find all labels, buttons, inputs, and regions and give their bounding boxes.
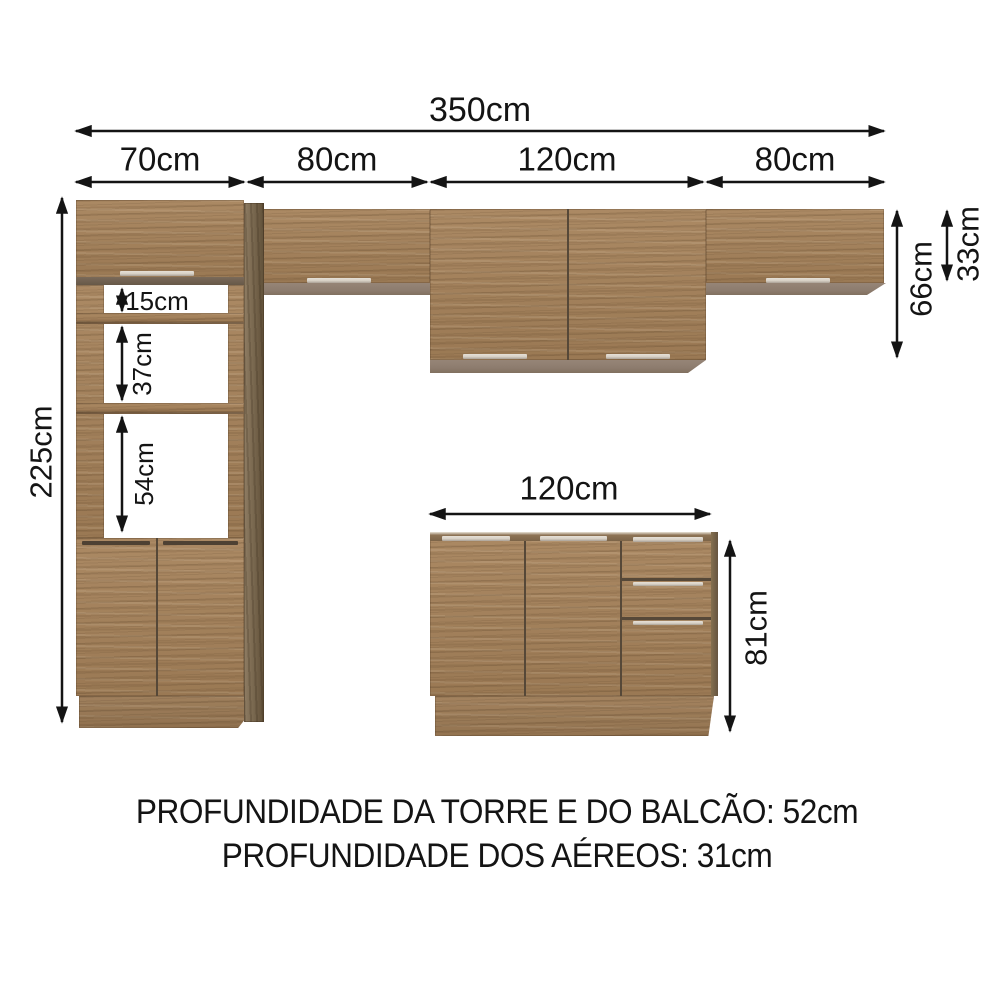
aereo-mid-right-door-handle	[606, 354, 670, 359]
tower-upper-door-handle	[120, 271, 194, 276]
balcao-drawer-divider-2	[622, 617, 718, 620]
aereo-mid-cabinet	[430, 209, 706, 360]
balcao-drawer-3-handle	[633, 621, 703, 625]
aereo-mid-left-door-handle	[463, 354, 527, 359]
aereo-right-underside	[706, 283, 886, 295]
label-segment-aereo-mid: 120cm	[517, 143, 616, 176]
label-segment-aereo-left: 80cm	[297, 143, 378, 176]
tower-upper-cabinet	[76, 200, 244, 278]
balcao-body	[430, 532, 718, 696]
balcao-right-side-edge	[711, 532, 718, 696]
aereo-left-door-handle	[307, 278, 371, 283]
balcao-right-door-handle	[540, 536, 607, 541]
label-opening-middle: 37cm	[129, 332, 155, 396]
footer-depth-tower-balcao: PROFUNDIDADE DA TORRE E DO BALCÃO: 52cm	[136, 795, 858, 829]
balcao-drawer-2-handle	[633, 582, 703, 586]
label-aereo-tall-height: 66cm	[906, 241, 937, 317]
footer-depth-aereos: PROFUNDIDADE DOS AÉREOS: 31cm	[222, 839, 773, 873]
tower-shelf-lower	[76, 403, 244, 414]
aereo-right-cabinet	[706, 209, 884, 283]
aereo-left-underside	[250, 283, 432, 295]
tower-side-panel	[244, 203, 264, 722]
tower-upper-cabinet-underside	[76, 277, 244, 285]
balcao-left-door-handle	[442, 536, 510, 541]
tower-plinth	[79, 696, 252, 728]
label-segment-aereo-right: 80cm	[755, 143, 836, 176]
kitchen-dimension-diagram: 350cm 70cm 80cm 120cm 80cm 225cm 15cm 37…	[0, 0, 1000, 1000]
label-aereo-short-height: 33cm	[953, 206, 984, 282]
tower-lower-right-door-handle	[163, 541, 238, 545]
tower-lower-door-gap	[156, 538, 158, 696]
balcao-door-gap	[524, 541, 526, 696]
tower-lower-left-door-handle	[82, 541, 150, 545]
balcao-plinth	[435, 696, 714, 736]
label-segment-tower: 70cm	[120, 143, 201, 176]
label-tower-height: 225cm	[26, 405, 57, 498]
aereo-left-cabinet	[250, 209, 430, 283]
label-balcao-width: 120cm	[519, 472, 618, 505]
label-balcao-height: 81cm	[741, 590, 772, 666]
label-opening-top: 15cm	[125, 288, 189, 314]
label-total-width: 350cm	[429, 93, 531, 127]
balcao-drawer-1-handle	[633, 537, 703, 542]
aereo-mid-door-gap	[567, 209, 569, 360]
tower-lower-cabinet	[76, 538, 244, 696]
label-opening-bottom: 54cm	[131, 442, 157, 506]
aereo-mid-underside	[430, 360, 706, 373]
balcao-drawer-divider-1	[622, 578, 718, 581]
aereo-right-door-handle	[766, 278, 830, 283]
